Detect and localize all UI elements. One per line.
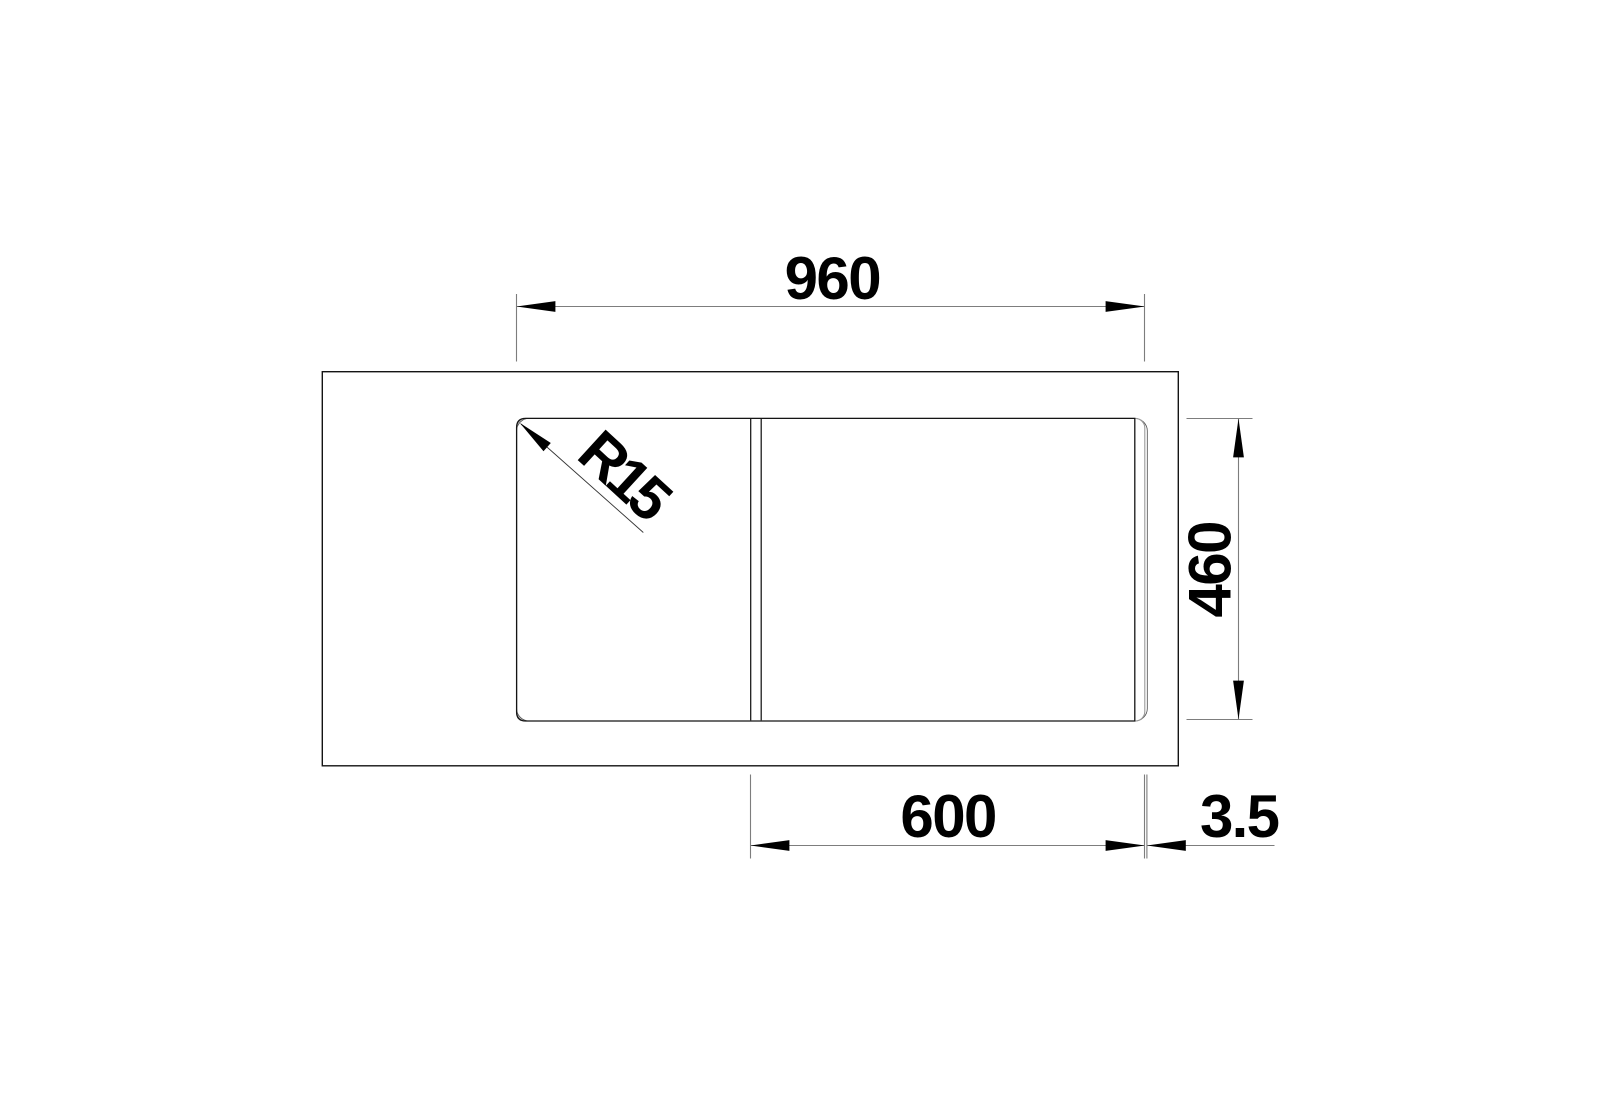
svg-text:3.5: 3.5 [1200, 783, 1280, 850]
svg-text:960: 960 [785, 245, 882, 312]
svg-text:460: 460 [1176, 521, 1243, 618]
svg-text:600: 600 [900, 783, 997, 850]
